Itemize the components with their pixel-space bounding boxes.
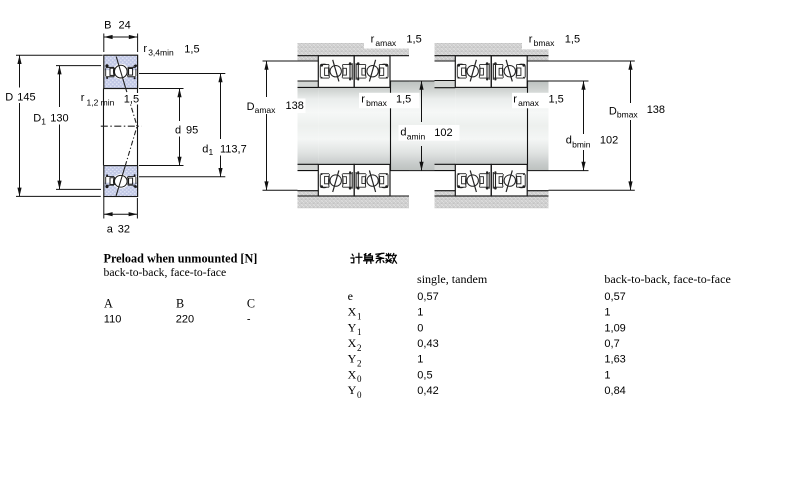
svg-text:r: r (143, 43, 147, 55)
svg-text:110: 110 (104, 314, 122, 326)
svg-text:1,09: 1,09 (604, 322, 625, 334)
svg-text:130: 130 (50, 113, 68, 125)
svg-text:D: D (609, 105, 617, 117)
svg-text:0,57: 0,57 (604, 291, 625, 303)
svg-text:1: 1 (357, 311, 362, 321)
svg-text:1,63: 1,63 (604, 354, 625, 366)
svg-text:1,5: 1,5 (565, 34, 580, 46)
svg-text:3,4min: 3,4min (148, 48, 174, 58)
svg-text:2: 2 (357, 359, 362, 369)
svg-text:back-to-back, face-to-face: back-to-back, face-to-face (604, 272, 730, 286)
svg-text:95: 95 (186, 124, 198, 136)
svg-text:amax: amax (518, 98, 540, 108)
svg-text:r: r (81, 92, 85, 104)
svg-text:D: D (247, 101, 255, 113)
svg-text:Preload when unmounted [N]: Preload when unmounted [N] (104, 251, 258, 265)
svg-text:r: r (529, 33, 533, 45)
svg-text:amin: amin (407, 132, 426, 142)
svg-text:0: 0 (357, 390, 362, 400)
svg-text:1: 1 (417, 307, 423, 319)
svg-text:1: 1 (604, 307, 610, 319)
svg-text:bmax: bmax (534, 38, 556, 48)
svg-text:138: 138 (647, 104, 665, 116)
svg-text:Y: Y (348, 352, 357, 366)
svg-text:-: - (247, 314, 251, 326)
svg-text:D: D (5, 92, 13, 104)
svg-text:102: 102 (600, 135, 618, 147)
svg-text:1,2 min: 1,2 min (87, 97, 115, 107)
svg-text:1,5: 1,5 (124, 93, 139, 105)
svg-text:1,5: 1,5 (184, 44, 199, 56)
svg-text:B: B (104, 19, 111, 31)
svg-text:0,84: 0,84 (604, 385, 625, 397)
svg-text:single, tandem: single, tandem (417, 272, 488, 286)
svg-text:24: 24 (119, 19, 131, 31)
svg-text:1,5: 1,5 (406, 34, 421, 46)
svg-text:1: 1 (209, 147, 214, 157)
svg-text:0,57: 0,57 (417, 291, 438, 303)
svg-text:e: e (348, 289, 353, 303)
svg-text:0,42: 0,42 (417, 385, 438, 397)
svg-text:d: d (202, 143, 208, 155)
svg-text:bmin: bmin (572, 139, 591, 149)
svg-text:102: 102 (434, 127, 452, 139)
svg-text:220: 220 (176, 314, 194, 326)
svg-text:amax: amax (375, 38, 397, 48)
svg-text:X: X (348, 336, 357, 350)
svg-text:Y: Y (348, 383, 357, 397)
svg-text:113,7: 113,7 (220, 143, 247, 155)
svg-text:0: 0 (357, 374, 362, 384)
svg-text:0,7: 0,7 (604, 338, 619, 350)
svg-text:32: 32 (118, 224, 130, 236)
svg-text:1,5: 1,5 (396, 94, 411, 106)
svg-text:a: a (107, 224, 114, 236)
svg-text:X: X (348, 305, 357, 319)
svg-text:bmax: bmax (366, 98, 388, 108)
svg-text:d: d (175, 124, 181, 136)
svg-text:Y: Y (348, 320, 357, 334)
svg-text:X: X (348, 367, 357, 381)
svg-text:back-to-back, face-to-face: back-to-back, face-to-face (104, 266, 227, 279)
svg-text:0,5: 0,5 (417, 369, 432, 381)
svg-text:0: 0 (417, 322, 423, 334)
svg-text:D: D (33, 113, 41, 125)
svg-text:1,5: 1,5 (549, 94, 564, 106)
svg-text:138: 138 (286, 100, 304, 112)
svg-text:r: r (513, 94, 517, 106)
svg-text:bmax: bmax (617, 110, 639, 120)
svg-text:C: C (247, 297, 255, 311)
svg-text:145: 145 (17, 92, 35, 104)
svg-text:r: r (371, 33, 375, 45)
svg-text:1: 1 (604, 369, 610, 381)
svg-text:1: 1 (417, 354, 423, 366)
svg-text:1: 1 (357, 327, 362, 337)
svg-text:2: 2 (357, 343, 362, 353)
svg-text:amax: amax (255, 105, 277, 115)
svg-text:B: B (176, 297, 184, 311)
svg-text:d: d (566, 135, 572, 147)
svg-text:0,43: 0,43 (417, 338, 438, 350)
svg-text:r: r (361, 94, 365, 106)
svg-text:1: 1 (41, 117, 46, 127)
svg-text:A: A (104, 297, 113, 311)
svg-text:d: d (400, 127, 406, 139)
